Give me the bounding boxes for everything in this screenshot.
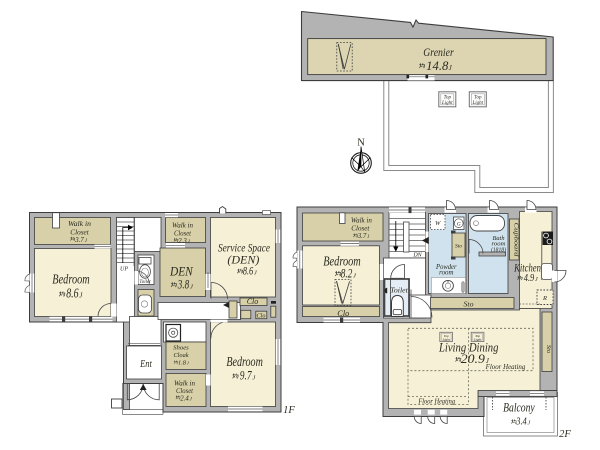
svg-text:Cloak: Cloak [173, 352, 189, 359]
svg-text:9.7: 9.7 [240, 368, 252, 383]
svg-text:8.6: 8.6 [243, 266, 254, 278]
svg-text:Toilet: Toilet [390, 287, 409, 295]
svg-text:Clo: Clo [247, 297, 259, 306]
svg-text:Walk in: Walk in [68, 220, 91, 228]
svg-text:8.2: 8.2 [341, 265, 353, 280]
svg-text:room: room [439, 267, 454, 276]
svg-text:Floor Heating: Floor Heating [485, 362, 526, 371]
svg-text:(1818): (1818) [491, 246, 506, 253]
svg-text:Ent: Ent [139, 359, 152, 370]
svg-text:3.7: 3.7 [357, 233, 367, 240]
svg-text:Floor Heating: Floor Heating [417, 396, 455, 405]
svg-text:W: W [435, 220, 441, 227]
svg-text:2.4: 2.4 [180, 395, 189, 402]
svg-text:Top: Top [474, 96, 482, 101]
svg-text:Sto: Sto [455, 244, 462, 250]
svg-text:J: J [254, 270, 257, 277]
svg-text:3.4: 3.4 [515, 416, 527, 428]
svg-text:J: J [535, 277, 538, 283]
svg-text:DN: DN [412, 253, 422, 259]
svg-text:G: G [457, 222, 461, 228]
svg-text:14.8: 14.8 [426, 59, 449, 73]
svg-text:Light: Light [441, 101, 453, 106]
svg-text:2F: 2F [559, 429, 571, 440]
svg-text:3.8: 3.8 [177, 276, 189, 291]
svg-text:J: J [528, 421, 531, 427]
svg-text:Closet: Closet [351, 224, 370, 232]
svg-text:Closet: Closet [176, 387, 194, 395]
svg-text:Grenier: Grenier [423, 47, 454, 59]
svg-text:4.9: 4.9 [524, 272, 535, 284]
svg-text:Sto: Sto [464, 300, 475, 308]
svg-text:Cupboard: Cupboard [513, 223, 520, 258]
svg-text:Clo: Clo [257, 312, 267, 319]
svg-text:3.7: 3.7 [74, 236, 84, 244]
svg-text:Light: Light [472, 101, 484, 106]
svg-text:Clo: Clo [337, 308, 349, 318]
svg-text:Balcony: Balcony [503, 400, 535, 415]
svg-text:Top: Top [444, 96, 452, 101]
svg-text:1.8: 1.8 [178, 359, 187, 366]
svg-text:Closet: Closet [174, 230, 192, 238]
svg-text:(DEN): (DEN) [227, 253, 259, 267]
svg-text:Shoes: Shoes [173, 345, 189, 352]
svg-text:Walk in: Walk in [172, 222, 193, 230]
svg-text:2.3: 2.3 [178, 238, 187, 245]
svg-text:8.6: 8.6 [66, 287, 78, 302]
svg-text:20.9: 20.9 [461, 351, 486, 366]
svg-text:N: N [357, 138, 365, 149]
svg-text:Walk in: Walk in [351, 217, 372, 225]
svg-text:1F: 1F [283, 405, 295, 416]
svg-text:UP: UP [120, 267, 128, 273]
svg-text:Bedroom: Bedroom [52, 273, 89, 288]
svg-text:Sto: Sto [545, 345, 552, 354]
svg-text:R: R [542, 295, 547, 302]
